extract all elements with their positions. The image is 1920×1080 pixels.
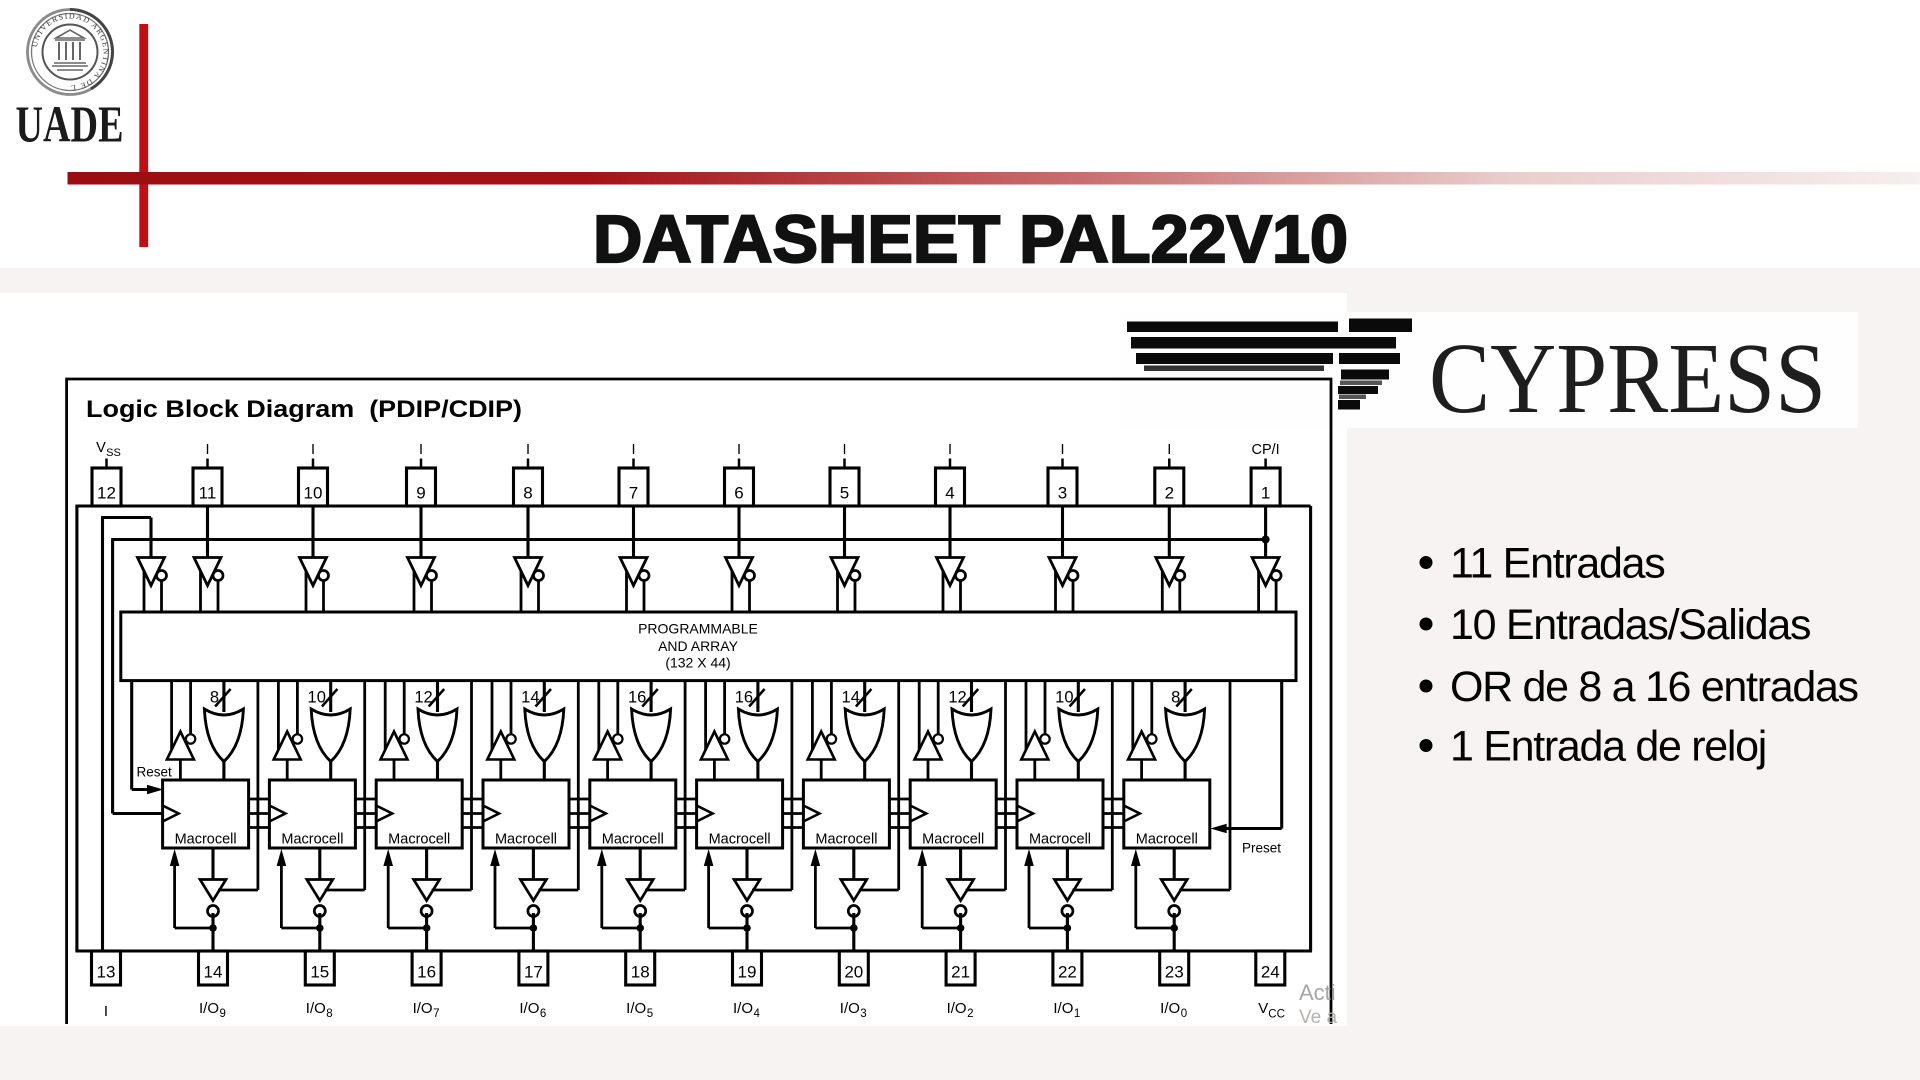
svg-text:AND ARRAY: AND ARRAY — [658, 638, 739, 654]
svg-text:I/O: I/O — [840, 1000, 860, 1017]
svg-text:9: 9 — [220, 1008, 226, 1020]
svg-text:10: 10 — [308, 689, 326, 707]
svg-text:CP/I: CP/I — [1251, 442, 1279, 458]
svg-text:14: 14 — [842, 689, 860, 707]
svg-text:1: 1 — [1261, 484, 1270, 503]
svg-text:I: I — [737, 442, 741, 458]
svg-text:Macrocell: Macrocell — [709, 832, 771, 848]
svg-text:22: 22 — [1058, 963, 1077, 982]
svg-text:21: 21 — [951, 963, 970, 982]
svg-text:(132 X 44): (132 X 44) — [665, 655, 730, 671]
svg-text:Preset: Preset — [1242, 841, 1281, 856]
svg-text:8: 8 — [523, 484, 532, 503]
svg-text:8: 8 — [1171, 689, 1180, 707]
svg-text:I/O: I/O — [1053, 1000, 1073, 1017]
svg-text:12: 12 — [97, 484, 116, 503]
svg-text:V: V — [1258, 1000, 1268, 1017]
svg-text:4: 4 — [945, 484, 954, 503]
svg-text:12: 12 — [948, 689, 966, 707]
svg-text:I/O: I/O — [1160, 1000, 1180, 1017]
svg-text:11 Entradas: 11 Entradas — [1450, 540, 1664, 588]
svg-text:13: 13 — [97, 963, 116, 982]
svg-text:12: 12 — [414, 689, 432, 707]
svg-text:4: 4 — [754, 1008, 761, 1020]
svg-text:I: I — [1167, 442, 1171, 458]
svg-text:Reset: Reset — [137, 765, 173, 780]
svg-text:I: I — [419, 442, 423, 458]
svg-text:23: 23 — [1165, 963, 1184, 982]
svg-text:I: I — [948, 442, 952, 458]
svg-text:8: 8 — [210, 689, 219, 707]
svg-text:Macrocell: Macrocell — [815, 832, 877, 848]
svg-text:14: 14 — [521, 689, 539, 707]
svg-text:I/O: I/O — [733, 1000, 753, 1017]
svg-text:16: 16 — [417, 963, 436, 982]
svg-text:2: 2 — [1165, 484, 1174, 503]
svg-text:I/O: I/O — [413, 1000, 433, 1017]
svg-text:I/O: I/O — [947, 1000, 967, 1017]
svg-text:7: 7 — [433, 1008, 439, 1020]
svg-text:10: 10 — [1055, 689, 1073, 707]
svg-text:2: 2 — [967, 1008, 973, 1020]
svg-text:8: 8 — [326, 1008, 332, 1020]
svg-text:15: 15 — [310, 963, 329, 982]
svg-text:1: 1 — [1074, 1008, 1080, 1020]
svg-text:9: 9 — [416, 484, 425, 503]
svg-text:UADE: UADE — [16, 97, 124, 154]
svg-text:Macrocell: Macrocell — [922, 832, 984, 848]
svg-text:3: 3 — [860, 1008, 866, 1020]
svg-text:17: 17 — [524, 963, 543, 982]
svg-text:10 Entradas/Salidas: 10 Entradas/Salidas — [1450, 601, 1810, 649]
svg-text:0: 0 — [1181, 1008, 1187, 1020]
svg-text:I/O: I/O — [519, 1000, 539, 1017]
svg-text:Macrocell: Macrocell — [495, 832, 557, 848]
svg-text:Logic Block Diagram (PDIP/CDI: Logic Block Diagram (PDIP/CDIP) — [86, 396, 522, 423]
svg-text:1 Entrada de reloj: 1 Entrada de reloj — [1450, 723, 1766, 771]
svg-text:10: 10 — [304, 484, 323, 503]
svg-text:I/O: I/O — [199, 1000, 219, 1017]
svg-text:6: 6 — [734, 484, 743, 503]
svg-text:Macrocell: Macrocell — [1029, 832, 1091, 848]
svg-text:5: 5 — [840, 484, 849, 503]
svg-text:PROGRAMMABLE: PROGRAMMABLE — [638, 621, 758, 637]
svg-text:14: 14 — [204, 963, 223, 982]
svg-text:I: I — [104, 1003, 108, 1020]
svg-text:Acti: Acti — [1299, 980, 1336, 1005]
svg-text:Macrocell: Macrocell — [1136, 832, 1198, 848]
svg-text:5: 5 — [647, 1008, 653, 1020]
svg-text:19: 19 — [738, 963, 757, 982]
svg-text:7: 7 — [629, 484, 638, 503]
svg-text:CYPRESS: CYPRESS — [1429, 322, 1826, 434]
svg-text:I: I — [631, 442, 635, 458]
svg-text:Macrocell: Macrocell — [602, 832, 664, 848]
svg-text:I: I — [311, 442, 315, 458]
svg-text:I/O: I/O — [626, 1000, 646, 1017]
svg-text:I: I — [1060, 442, 1064, 458]
svg-text:DATASHEET PAL22V10: DATASHEET PAL22V10 — [593, 202, 1348, 277]
svg-text:SS: SS — [106, 447, 121, 459]
svg-text:6: 6 — [540, 1008, 546, 1020]
svg-text:I: I — [526, 442, 530, 458]
svg-text:18: 18 — [631, 963, 650, 982]
svg-text:V: V — [96, 440, 106, 456]
svg-text:I: I — [205, 442, 209, 458]
svg-text:Ve a: Ve a — [1299, 1007, 1337, 1028]
svg-text:20: 20 — [844, 963, 863, 982]
svg-text:16: 16 — [735, 689, 753, 707]
svg-text:3: 3 — [1058, 484, 1067, 503]
svg-text:24: 24 — [1261, 963, 1280, 982]
svg-text:Macrocell: Macrocell — [281, 832, 343, 848]
svg-text:I/O: I/O — [306, 1000, 326, 1017]
svg-text:CC: CC — [1268, 1009, 1285, 1021]
svg-text:Macrocell: Macrocell — [175, 832, 237, 848]
svg-text:11: 11 — [199, 484, 217, 503]
svg-text:I: I — [842, 442, 846, 458]
svg-text:OR de 8 a 16 entradas: OR de 8 a 16 entradas — [1450, 663, 1858, 711]
svg-text:Macrocell: Macrocell — [388, 832, 450, 848]
svg-text:16: 16 — [628, 689, 646, 707]
